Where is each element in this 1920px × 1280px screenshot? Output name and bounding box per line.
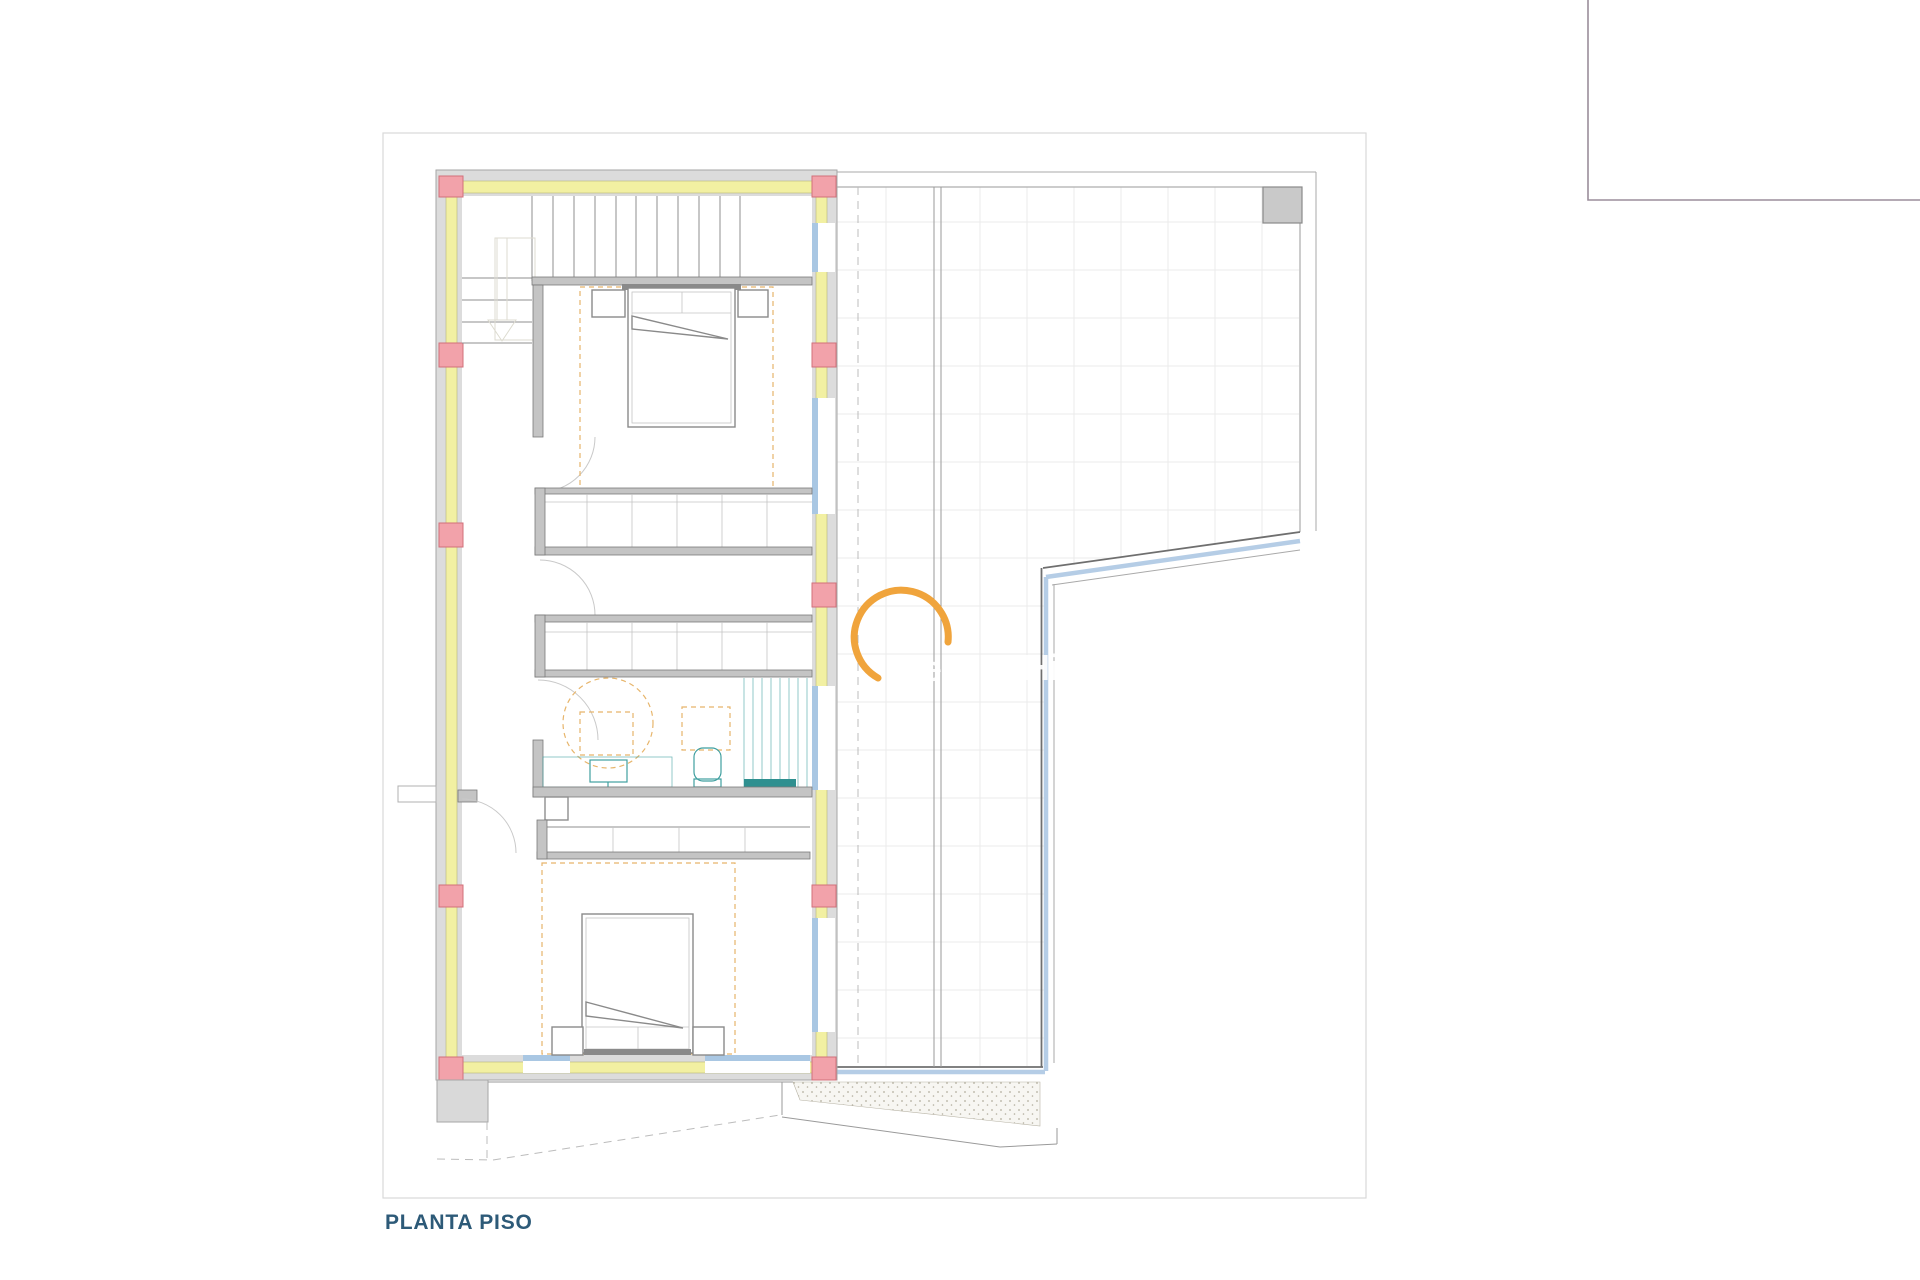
watermark-letter: H [1024, 647, 1050, 688]
watermark-letter: e [922, 648, 942, 689]
terrace-tile-grid [837, 187, 1300, 1067]
entrance-canopy [437, 1080, 1057, 1160]
bed [628, 288, 735, 427]
stair-edge-wall [532, 277, 812, 285]
chimney-block [1263, 187, 1302, 223]
floor-plan-drawing: e H i PLANTA PISO [0, 0, 1920, 1280]
terrace-parapet [837, 172, 1316, 532]
title-block-frame [1588, 0, 1920, 200]
canvas: e H i PLANTA PISO [0, 0, 1920, 1280]
duct-niche [545, 797, 568, 820]
exterior-sill [398, 786, 436, 802]
terrace [837, 172, 1316, 1072]
insulation-top [441, 181, 831, 193]
terrace-railing [934, 187, 941, 1067]
page-title: PLANTA PISO [385, 1211, 533, 1234]
nightstand [552, 1027, 583, 1055]
watermark-letter: i [1050, 647, 1060, 688]
insulation-left [446, 181, 457, 1072]
bathroom-south-wall [533, 787, 812, 797]
terrace-glass-balustrade [837, 532, 1300, 1072]
nightstand [592, 290, 625, 317]
nightstand [738, 290, 768, 317]
nightstand [693, 1027, 724, 1055]
partition-wall [533, 285, 543, 437]
stippled-paving [793, 1082, 1040, 1126]
bed-headboard [584, 1049, 691, 1055]
bed [582, 914, 693, 1053]
watermark: e H i [854, 590, 1060, 689]
